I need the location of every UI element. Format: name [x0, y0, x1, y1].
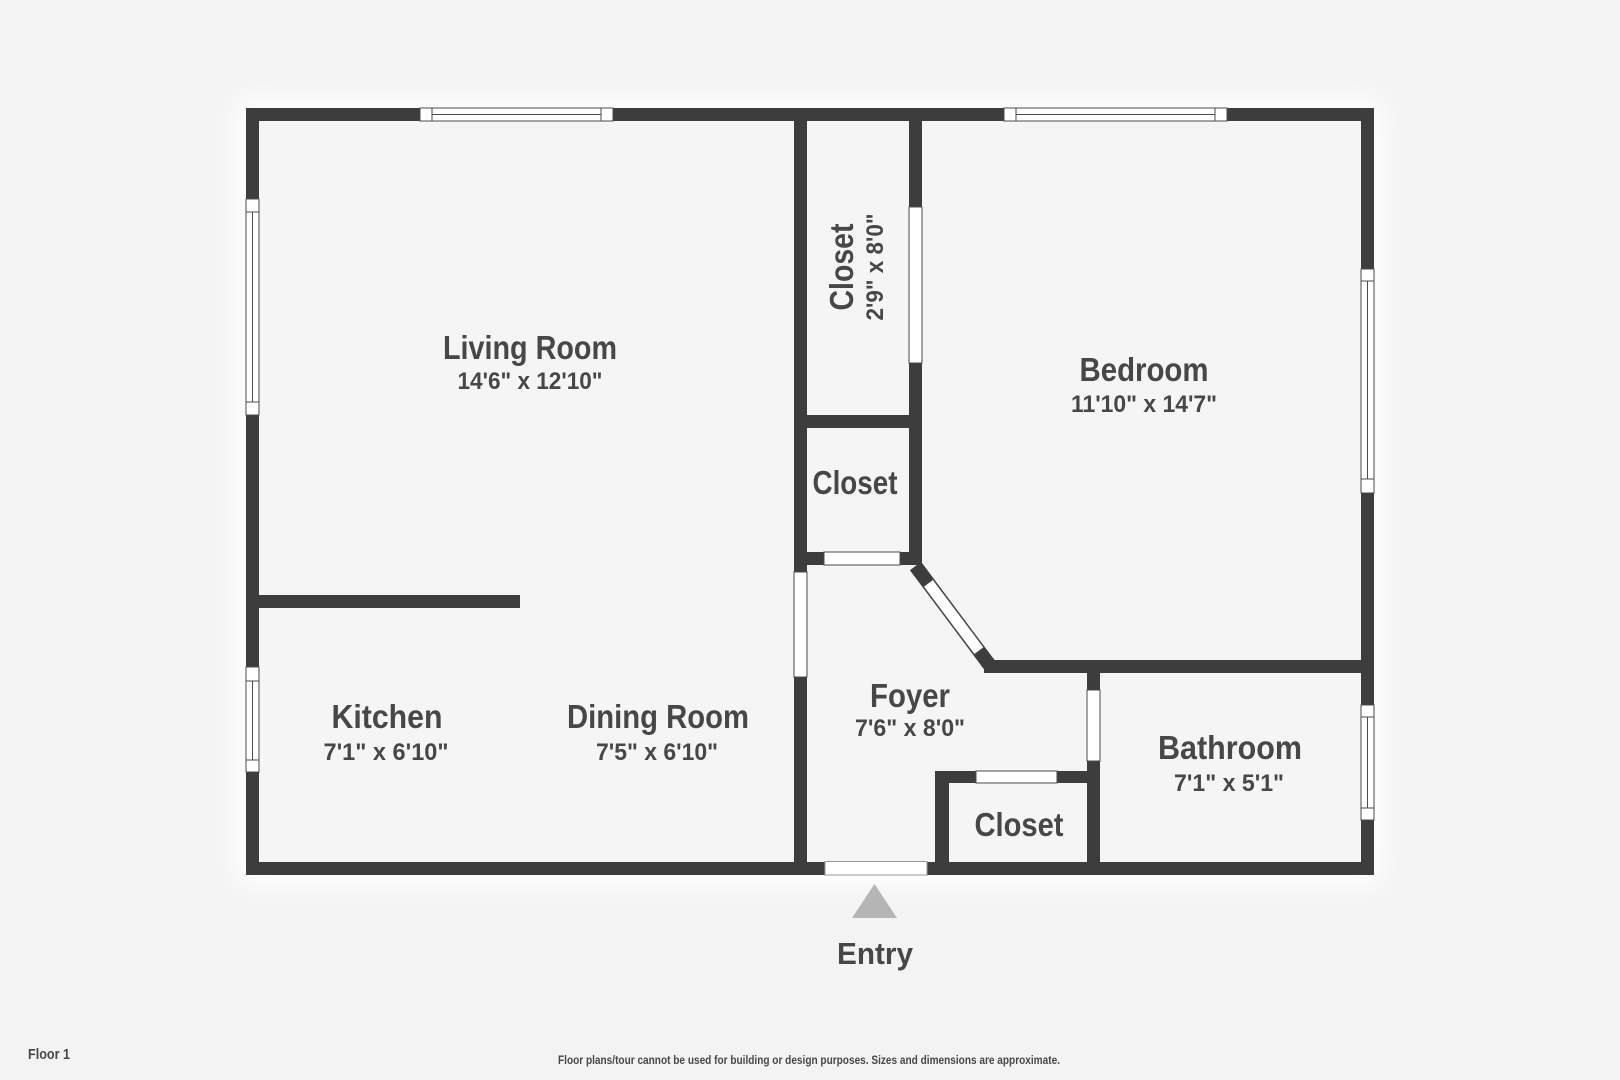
svg-text:7'5" x 6'10": 7'5" x 6'10"	[596, 739, 718, 766]
svg-text:Bathroom: Bathroom	[1158, 729, 1302, 766]
svg-text:Foyer: Foyer	[870, 677, 950, 714]
svg-text:11'10" x 14'7": 11'10" x 14'7"	[1071, 391, 1217, 418]
svg-text:Entry: Entry	[837, 936, 914, 971]
svg-text:Closet: Closet	[823, 223, 860, 310]
svg-text:7'1" x 6'10": 7'1" x 6'10"	[324, 739, 449, 766]
svg-text:Kitchen: Kitchen	[332, 698, 443, 735]
svg-text:Floor 1: Floor 1	[28, 1046, 70, 1063]
svg-text:2'9" x 8'0": 2'9" x 8'0"	[862, 214, 889, 321]
svg-text:Bedroom: Bedroom	[1080, 351, 1209, 388]
svg-text:Closet: Closet	[975, 806, 1064, 843]
svg-text:Closet: Closet	[813, 464, 898, 501]
svg-text:Dining Room: Dining Room	[567, 698, 749, 735]
svg-text:Floor plans/tour cannot be use: Floor plans/tour cannot be used for buil…	[558, 1055, 1060, 1067]
svg-text:Living Room: Living Room	[443, 329, 617, 366]
svg-text:14'6" x 12'10": 14'6" x 12'10"	[458, 368, 603, 395]
svg-text:7'1" x 5'1": 7'1" x 5'1"	[1174, 770, 1284, 797]
svg-text:7'6" x 8'0": 7'6" x 8'0"	[855, 715, 965, 742]
